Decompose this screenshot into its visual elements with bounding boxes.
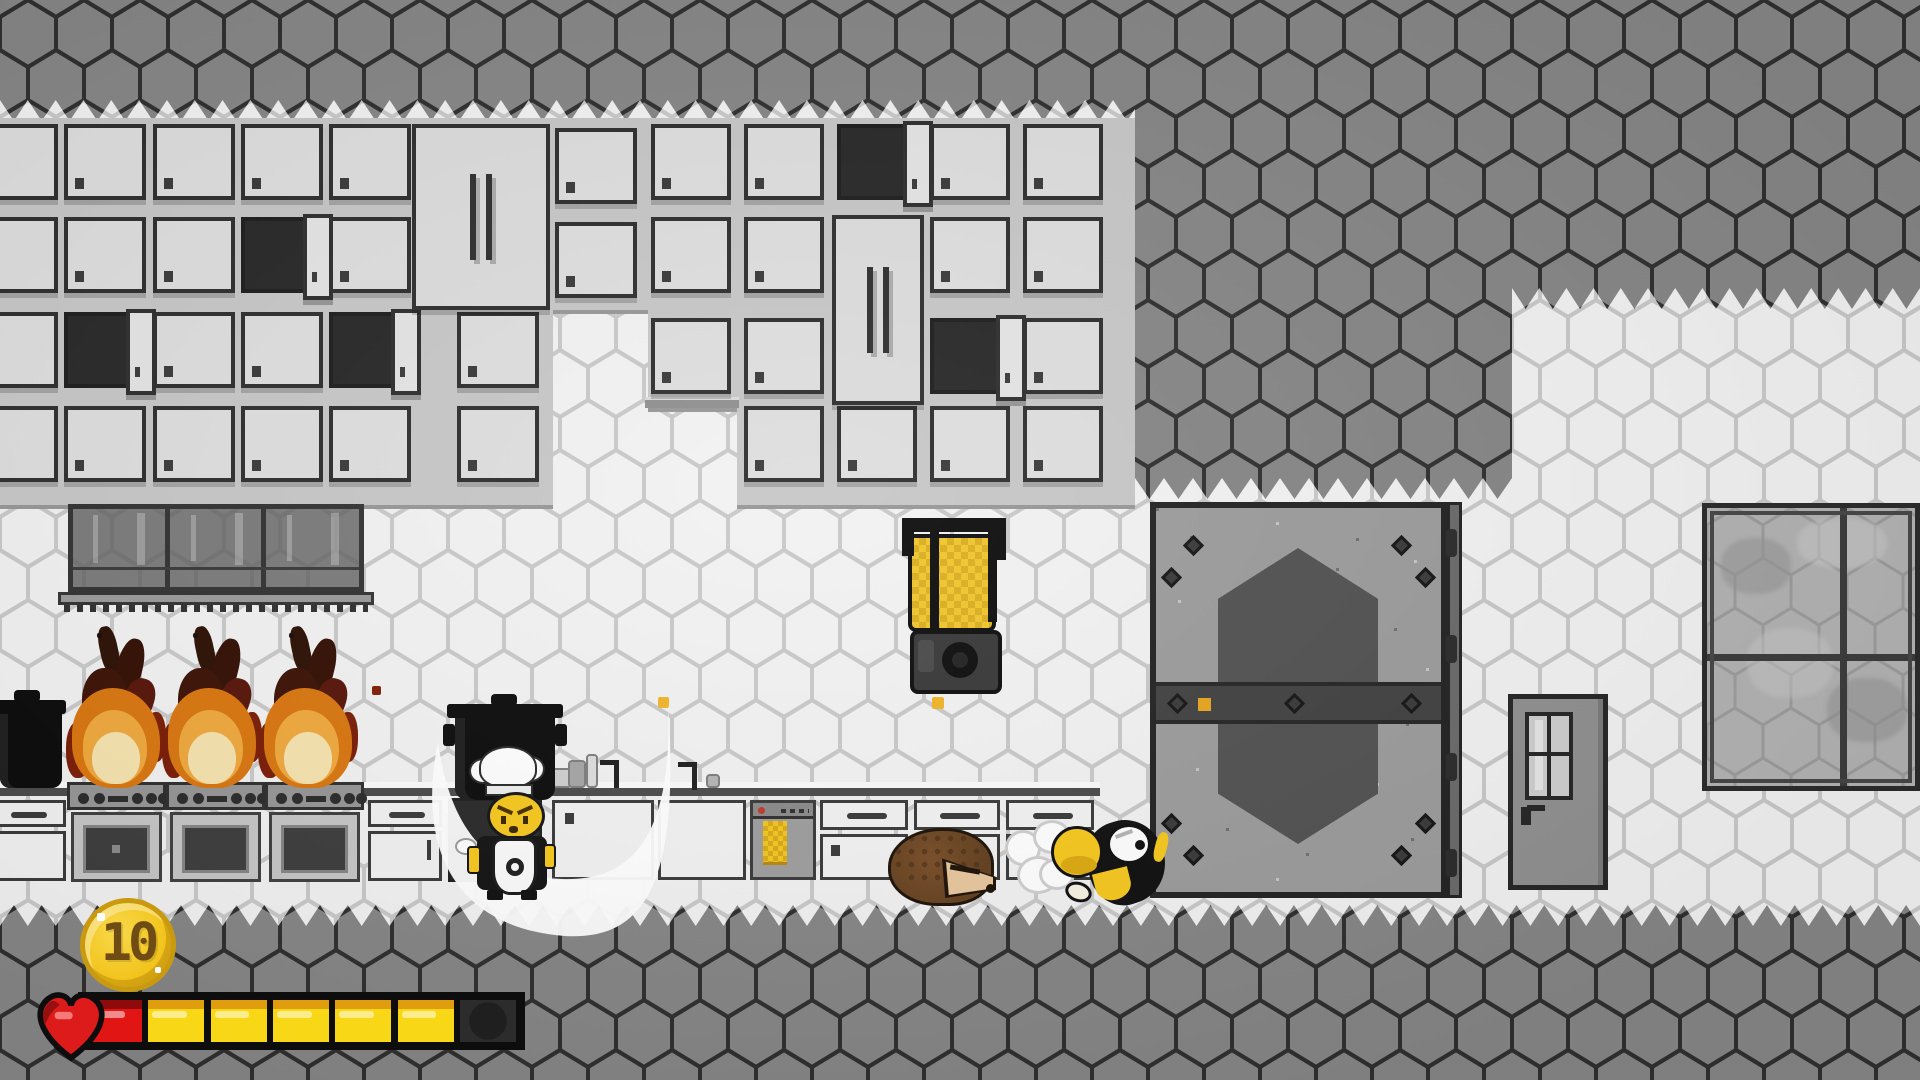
- coin-counter: 10: [80, 898, 176, 992]
- pot-knob: [491, 694, 517, 706]
- coin-sparkle: [97, 913, 105, 921]
- heart-icon: [30, 980, 112, 1070]
- health-segment-yellow: [148, 1000, 204, 1042]
- health-segment-shine: [402, 1011, 437, 1018]
- chef-mouth: [509, 826, 518, 833]
- coin-sparkle: [155, 967, 161, 973]
- chef-foot: [521, 890, 537, 900]
- pot-rim: [447, 704, 563, 718]
- health-segment-yellow: [273, 1000, 329, 1042]
- pot-handle: [443, 724, 455, 746]
- particle: [932, 697, 944, 709]
- particle: [97, 633, 102, 638]
- chef-eye: [523, 816, 528, 824]
- apron-logo: [506, 858, 524, 876]
- pot-handle: [555, 724, 567, 746]
- coin-count: 10: [101, 913, 156, 973]
- particle: [658, 697, 669, 708]
- chef-foot: [487, 890, 503, 900]
- bee-pupil: [1135, 840, 1145, 850]
- health-segment-yellow: [335, 1000, 391, 1042]
- health-segment-shine: [277, 1011, 312, 1018]
- health-bar: [78, 992, 525, 1050]
- particle: [372, 686, 381, 695]
- health-segment-empty: [460, 1000, 516, 1042]
- particle-layer: [0, 0, 1920, 1080]
- chef-bee: [445, 690, 567, 912]
- game-viewport[interactable]: 10: [0, 0, 1920, 1080]
- player-bee: [1005, 812, 1175, 912]
- health-segment-yellow: [211, 1000, 267, 1042]
- health-segment-shine: [339, 1011, 374, 1018]
- chef-arm: [543, 844, 556, 869]
- health-segment-shine: [152, 1011, 187, 1018]
- particle: [193, 633, 198, 638]
- hedgehog: [888, 820, 1004, 912]
- bee-head-shade: [1061, 856, 1097, 874]
- chef-eye: [501, 816, 506, 824]
- chef-head: [487, 792, 545, 840]
- chef-hat: [479, 746, 537, 788]
- particle: [289, 633, 294, 638]
- health-segment-shine: [215, 1011, 250, 1018]
- health-segment-yellow: [398, 1000, 454, 1042]
- chef-arm: [467, 846, 481, 874]
- hedgehog-nose: [986, 884, 995, 893]
